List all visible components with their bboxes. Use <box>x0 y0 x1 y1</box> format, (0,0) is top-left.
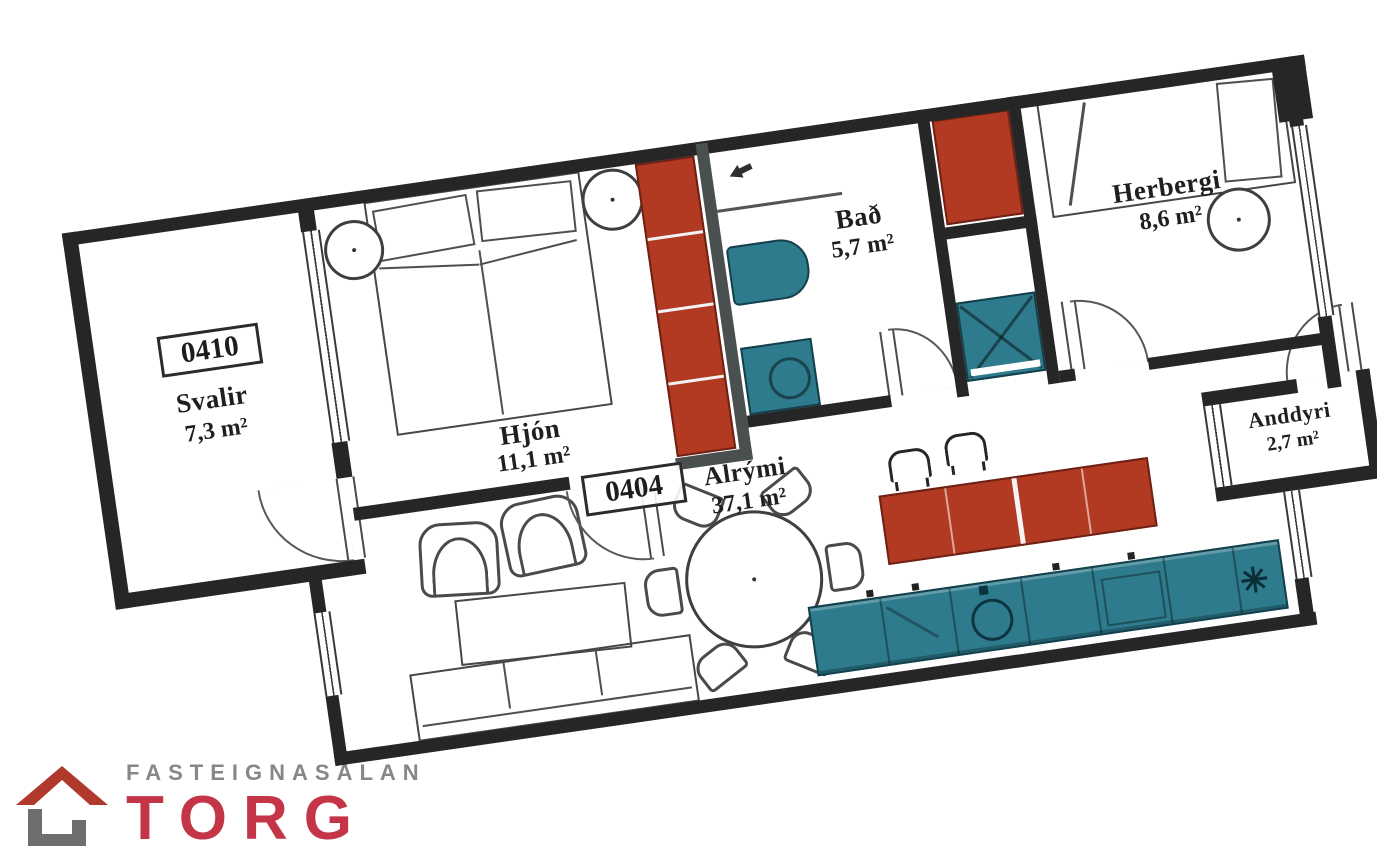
wall <box>331 441 352 479</box>
vent-arrow-icon <box>723 155 759 189</box>
window <box>1291 125 1334 317</box>
floor-plan: 0410 Svalir 7,3 m² Hjón 11,1 m² Bað 5,7 … <box>21 0 1377 849</box>
dining-chair <box>642 566 684 619</box>
door-arc <box>1070 291 1150 372</box>
bar-stool <box>943 430 989 467</box>
armchair <box>417 520 501 598</box>
counter-knob <box>1052 563 1060 571</box>
oven <box>1101 570 1167 626</box>
shower <box>956 291 1047 382</box>
pillow <box>372 194 476 262</box>
window <box>1283 490 1312 580</box>
kitchen-sink <box>969 596 1017 644</box>
pillow <box>476 180 577 242</box>
wall <box>114 559 367 610</box>
logo-house-icon <box>12 760 112 852</box>
wall <box>298 208 317 232</box>
door-arc <box>257 478 354 573</box>
wall <box>1059 369 1077 383</box>
unit-number-badge: 0410 <box>157 323 264 378</box>
bar-stool <box>886 446 932 483</box>
bathroom-sink <box>740 338 821 416</box>
closet <box>932 109 1024 225</box>
counter-knob <box>1127 552 1135 560</box>
counter-knob <box>866 590 874 598</box>
faucet <box>978 585 988 595</box>
double-bed <box>363 171 612 436</box>
window <box>314 611 343 697</box>
dining-chair <box>824 540 866 593</box>
wall <box>62 231 131 609</box>
unit-number-badge: 0404 <box>581 462 688 517</box>
freezer-star-icon <box>1232 556 1277 601</box>
counter-knob <box>911 583 919 591</box>
